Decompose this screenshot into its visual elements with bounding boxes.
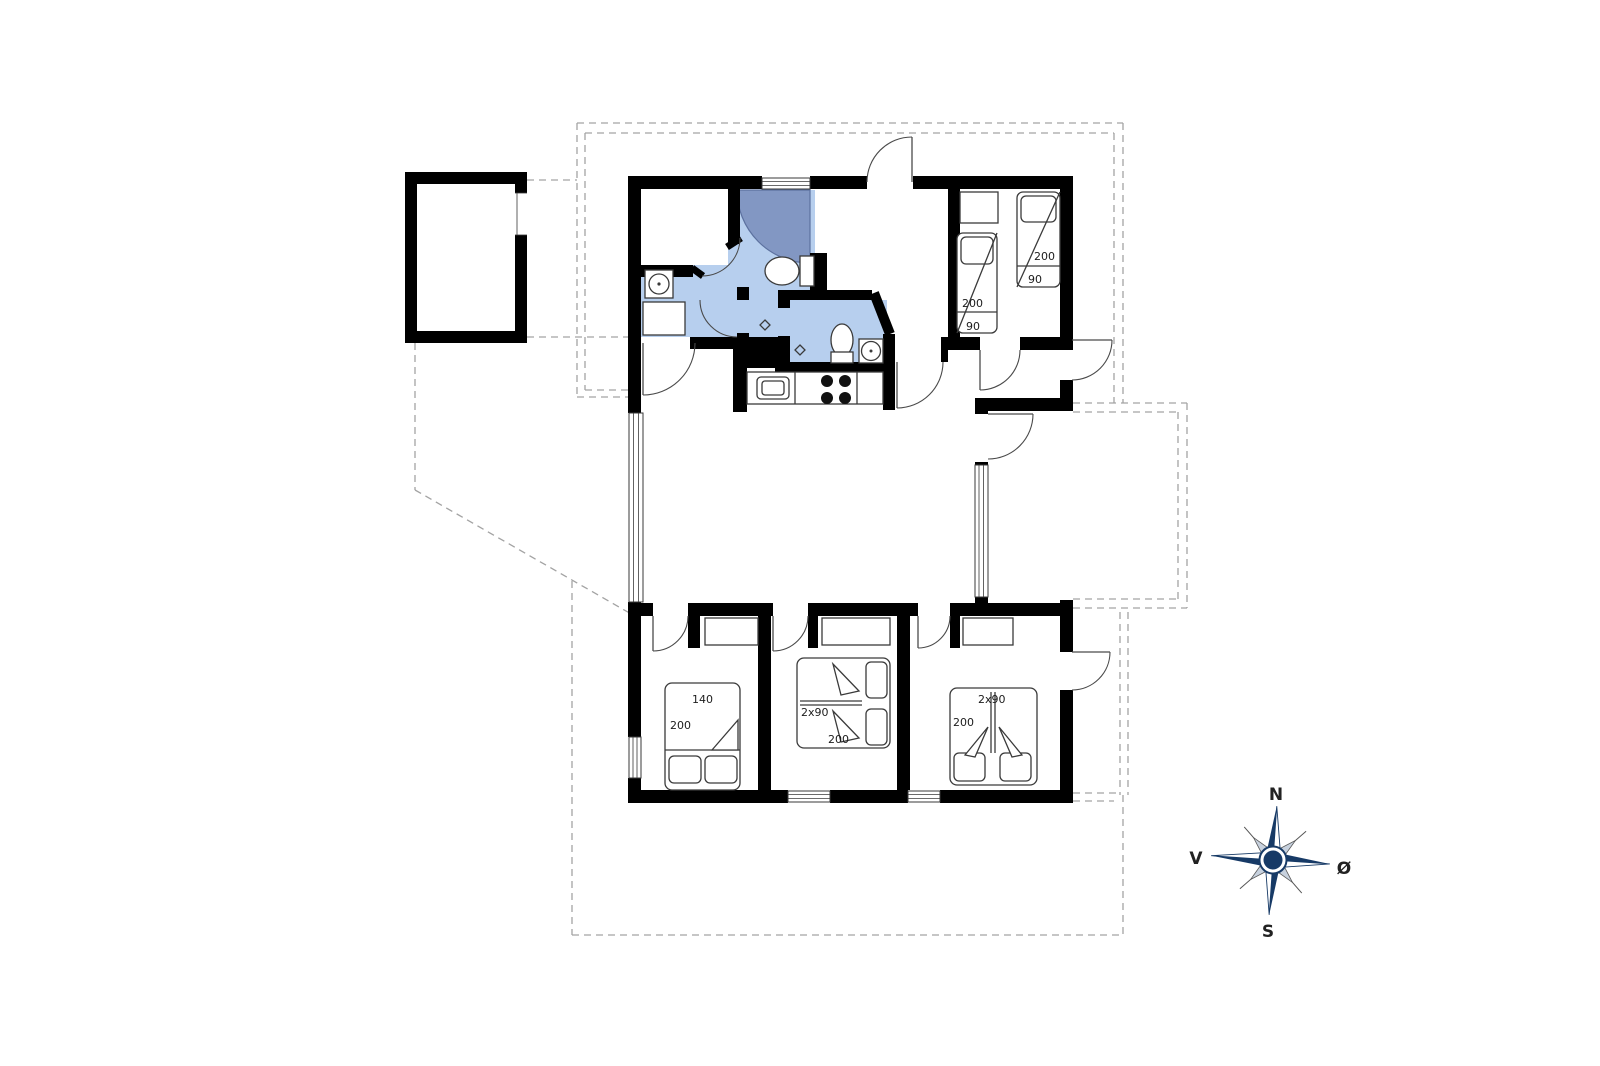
kitchen — [747, 372, 883, 404]
window-bottom-right — [908, 791, 940, 802]
bed-length-label: 200 — [1034, 250, 1055, 263]
bed-width-label: 90 — [966, 320, 980, 333]
side-door-right — [1072, 340, 1112, 380]
bedroom-right-door — [918, 616, 950, 648]
bed-length-label: 200 — [962, 297, 983, 310]
bedroom-top-right-door — [980, 350, 1020, 390]
bath-exit-door — [643, 343, 695, 395]
toilet2-icon — [831, 324, 853, 363]
bedroom-middle-door — [773, 616, 808, 651]
bedroom-right-terrace-door — [1072, 652, 1110, 690]
wardrobe — [822, 618, 890, 645]
bed-bedroom-left: 140 200 — [665, 683, 740, 790]
floor-plan-drawing: 200 90 200 90 140 200 2x90 200 — [0, 0, 1600, 1066]
bed-width-label: 140 — [692, 693, 713, 706]
bed-config-label: 2x90 — [801, 706, 829, 719]
bed-width-label: 90 — [1028, 273, 1042, 286]
compass-south-label: S — [1262, 922, 1274, 942]
window-bedroom-left — [629, 737, 641, 778]
bed-bedroom-right: 2x90 200 — [950, 688, 1037, 785]
floor-plan-canvas: 200 90 200 90 140 200 2x90 200 — [0, 0, 1600, 1066]
window-living-left — [629, 413, 643, 602]
bed-length-label: 200 — [828, 733, 849, 746]
washbasin-icon — [645, 270, 673, 298]
window-living-right — [975, 465, 988, 597]
compass-rose: N S V Ø — [1189, 785, 1351, 942]
compass-north-label: N — [1269, 785, 1283, 805]
compass-west-label: V — [1189, 849, 1203, 869]
garage — [405, 172, 527, 343]
window-top-bath — [762, 178, 810, 189]
bed-top-right-a: 200 90 — [957, 233, 997, 333]
compass-east-label: Ø — [1337, 859, 1351, 879]
wardrobe — [705, 618, 758, 645]
wardrobe — [963, 618, 1013, 645]
kitchen-sink-icon — [757, 377, 789, 399]
wardrobe — [960, 192, 998, 223]
front-door — [867, 137, 912, 182]
window-bottom-middle — [788, 791, 830, 802]
terrace-door-living — [988, 414, 1033, 459]
bed-config-label: 2x90 — [978, 693, 1006, 706]
washbasin2-icon — [859, 339, 883, 363]
bedroom-left-door — [653, 616, 688, 651]
bed-bedroom-middle: 2x90 200 — [797, 658, 890, 748]
bath-cabinet — [643, 302, 685, 335]
toilet-icon — [765, 256, 814, 286]
hall-living-door — [897, 362, 943, 408]
bed-top-right-b: 200 90 — [1017, 192, 1060, 287]
bed-length-label: 200 — [953, 716, 974, 729]
bed-length-label: 200 — [670, 719, 691, 732]
